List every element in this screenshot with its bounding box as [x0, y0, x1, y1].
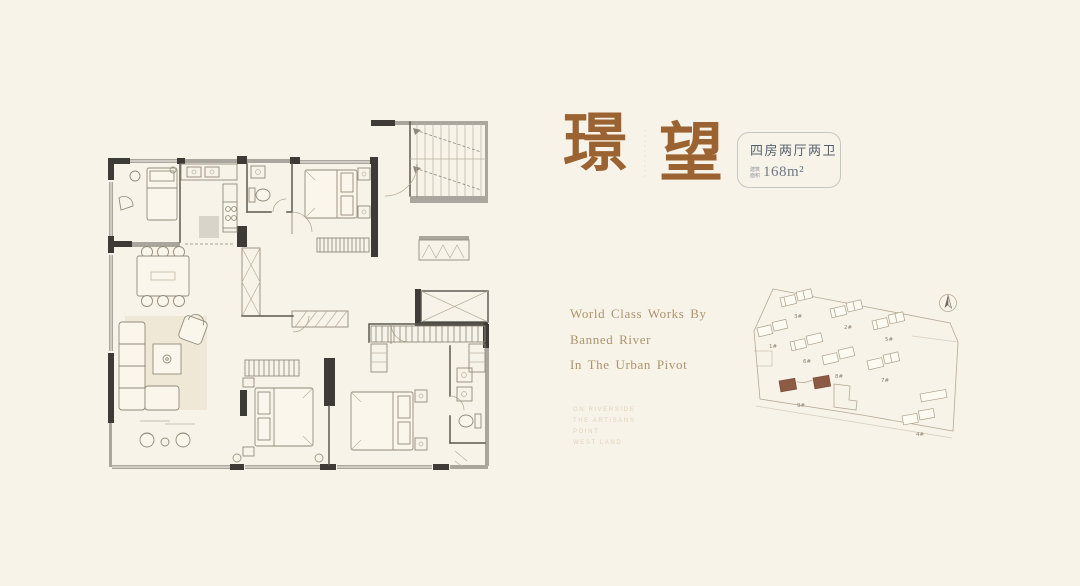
building-5	[872, 312, 906, 330]
tagline-line-2: Banned River	[570, 327, 707, 353]
study-room	[119, 167, 177, 220]
building-4	[902, 408, 935, 424]
bathroom-top	[249, 166, 286, 212]
duct-shaft	[419, 236, 469, 260]
kitchen	[181, 164, 237, 238]
title-char-wang: 望	[659, 122, 723, 186]
title-char-jing: 璟	[563, 112, 627, 176]
hall-closet	[242, 248, 260, 316]
building-label: 8#	[835, 374, 843, 380]
poster-canvas: 璟 ·········· 望 四房两厅两卫 建筑 面积 168m² World …	[0, 0, 1080, 586]
building-label: 4#	[916, 432, 924, 438]
staircase	[371, 120, 488, 203]
site-plan: 3# 2# 5# 1# 6# 8#	[742, 276, 972, 461]
building-label: 2#	[844, 325, 852, 331]
fine-print: ON RIVERSIDE THE ARTISANS POINT WEST LAN…	[573, 405, 635, 449]
building-8	[822, 347, 856, 365]
seal-marks: ··········	[641, 130, 647, 182]
north-arrow-icon	[940, 295, 957, 312]
area-value: 168m²	[763, 164, 804, 181]
living-room	[119, 311, 210, 410]
elevator	[415, 289, 488, 326]
layout-label: 四房两厅两卫	[750, 140, 840, 159]
building-label: 3#	[794, 314, 802, 320]
building-label: 6#	[803, 359, 811, 365]
building-label: 5#	[885, 337, 893, 343]
wardrobe-bedroom2	[317, 238, 369, 252]
tagline-line-1: World Class Works By	[570, 301, 707, 327]
building-2	[830, 300, 864, 318]
building-label: 1#	[769, 344, 777, 350]
building-1	[757, 319, 789, 336]
bedroom-2	[305, 168, 370, 218]
master-bedroom	[351, 326, 485, 450]
building-9-highlighted	[779, 372, 831, 394]
building-label: 9#	[797, 403, 805, 409]
building-6	[790, 333, 824, 351]
shear-wall	[292, 311, 348, 327]
area-prefix: 建筑 面积	[750, 167, 760, 179]
apartment-floor-plan	[95, 106, 495, 474]
building-7	[867, 352, 901, 370]
master-bathroom	[455, 368, 481, 467]
unit-spec-box: 四房两厅两卫 建筑 面积 168m²	[737, 132, 841, 188]
building-label: 7#	[881, 378, 889, 384]
project-title: 璟 ·········· 望	[563, 112, 723, 186]
tagline-line-3: In The Urban Pivot	[570, 352, 707, 378]
balcony	[140, 421, 195, 447]
tagline: World Class Works By Banned River In The…	[570, 301, 707, 378]
dining-area	[137, 247, 189, 307]
